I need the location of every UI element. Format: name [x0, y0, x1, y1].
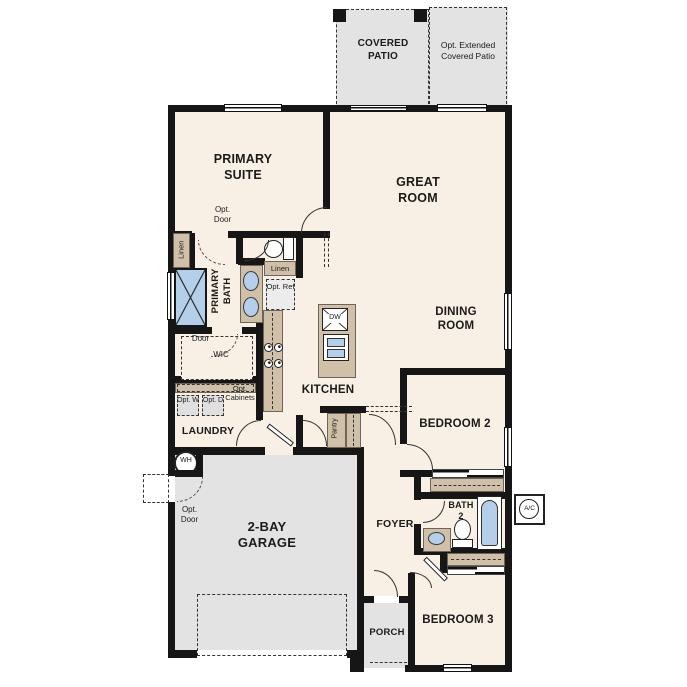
wic-door-gap [212, 327, 242, 334]
bedroom2-label: BEDROOM 2 [403, 417, 507, 431]
bath2-tub-basin [481, 500, 498, 546]
garage-opt-door-landing [143, 474, 169, 503]
porch-edge-dash [370, 662, 407, 663]
hall-closet-line [353, 415, 354, 446]
bedroom3-label: BEDROOM 3 [406, 613, 510, 627]
suite-opt-door-gap [192, 231, 228, 238]
primary-suite-window [224, 104, 282, 112]
kitchen-label: KITCHEN [292, 383, 364, 397]
patio-slider-door [350, 105, 407, 111]
shower-x-icon [176, 270, 205, 325]
bedroom3-closet-rod [451, 559, 501, 560]
pantry-label: Pantry [332, 409, 341, 447]
primary-suite-label: PRIMARY SUITE [198, 152, 288, 183]
patio-post-left [333, 9, 346, 22]
primary-bath-label: PRIMARY BATH [210, 259, 234, 323]
range-burner-1 [264, 343, 273, 352]
range-burner-2 [274, 343, 283, 352]
linen-cabinet-label: Linen [264, 264, 296, 273]
opt-door-label-primary: Opt. Door [209, 205, 236, 225]
bedroom3-closet-slider [447, 566, 505, 575]
foyer-label: FOYER [369, 518, 421, 531]
wall-right [505, 105, 512, 672]
opt-dryer-label: Opt. D [202, 397, 224, 406]
island-sink-basin-1 [327, 338, 345, 347]
floor-plan: COVERED PATIO Opt. Extended Covered Pati… [0, 0, 687, 687]
wic-label: WIC [205, 350, 237, 360]
garage-entry-gap [265, 447, 293, 455]
ac-unit-label: A/C [514, 505, 545, 513]
bedroom2-door-gap [400, 444, 407, 470]
primary-toilet-tank [283, 237, 294, 260]
wall-toilet-right [296, 231, 303, 278]
wall-garage-foyer [357, 447, 364, 603]
dining-room-window [504, 293, 512, 350]
bedroom2-window [504, 427, 512, 467]
porch-label: PORCH [366, 627, 408, 639]
front-door-gap [374, 596, 399, 603]
bedroom3-window [443, 664, 472, 672]
wall-suite-greatroom [323, 112, 330, 209]
dining-room-label: DINING ROOM [425, 305, 487, 334]
garage-opt-door-gap [168, 476, 175, 502]
opt-washer-label: Opt. W [177, 397, 199, 406]
garage-label: 2-BAY GARAGE [222, 519, 312, 552]
opt-opening-dash-2 [366, 411, 412, 412]
range-burner-3 [264, 359, 273, 368]
bedroom2-closet-slider [432, 469, 504, 478]
covered-patio-label: COVERED PATIO [344, 38, 422, 63]
bath2-label: BATH 2 [446, 500, 476, 523]
opt-door-label-garage: Opt. Door [176, 505, 203, 525]
wall-hall-top [320, 406, 366, 413]
wall-dining-bedroom2 [400, 368, 508, 375]
garage-door-outline [197, 594, 347, 656]
extended-patio-label: Opt. Extended Covered Patio [434, 40, 502, 61]
opt-ref-label: Opt. Ref [266, 282, 295, 291]
opt-door-label-wic: Opt. Door [187, 324, 214, 344]
primary-sink-2 [243, 297, 259, 317]
great-room-label: GREAT ROOM [387, 175, 449, 206]
wall-bedroom2-bottom [400, 470, 432, 477]
island-sink-basin-2 [327, 349, 345, 358]
wall-wh-bottom [175, 470, 203, 477]
shower-fixture [174, 268, 207, 327]
linen-closet-label: Linen [176, 235, 185, 265]
primary-sink-1 [243, 271, 259, 291]
suite-entry-dashes [324, 233, 329, 267]
opt-opening-dash-1 [366, 406, 412, 407]
great-room-window [437, 104, 487, 112]
bath2-toilet-tank [452, 539, 473, 548]
dishwasher-label: DW [324, 314, 346, 323]
range-burner-4 [274, 359, 283, 368]
bedroom2-closet-rod [434, 485, 500, 486]
wall-hall-stub [296, 415, 303, 450]
bath2-sink [428, 532, 445, 545]
wall-porch-left [357, 603, 364, 672]
water-heater-label: WH [174, 457, 198, 466]
laundry-label: LAUNDRY [171, 425, 245, 438]
patio-post-right [414, 9, 427, 22]
shower-door [167, 272, 175, 320]
opt-cabinets-label: Opt. Cabinets [222, 384, 258, 403]
